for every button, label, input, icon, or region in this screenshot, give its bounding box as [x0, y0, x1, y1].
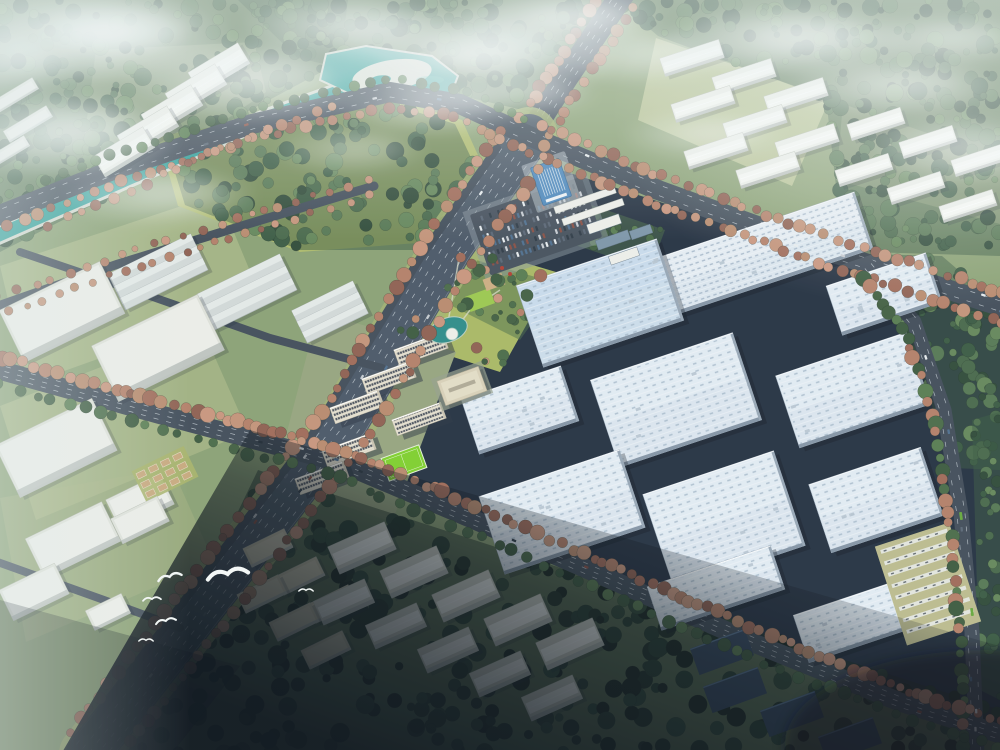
industrial-park-rendering [0, 0, 1000, 750]
layer-atmosphere-haze [0, 0, 1000, 750]
aerial-rendering-canvas [0, 0, 1000, 750]
